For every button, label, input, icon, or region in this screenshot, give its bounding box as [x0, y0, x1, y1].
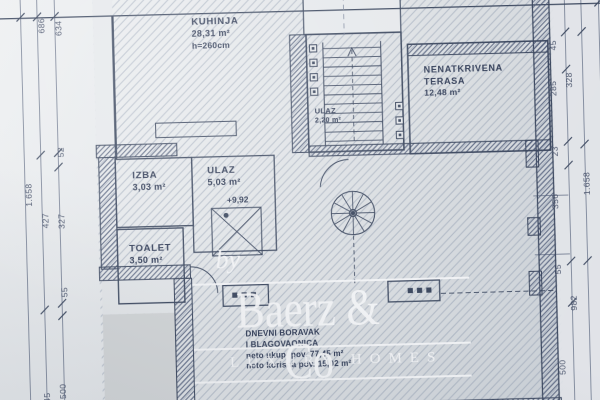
room-label-toalet: TOALET 3,50 m² — [129, 242, 172, 267]
dim-right-total: 1.658 — [581, 172, 592, 196]
spiral-stair — [331, 191, 375, 235]
floor-plan-photo: KUHINJA 28,31 m² h=260cm NENATKRIVENA TE… — [0, 0, 600, 400]
room-label-ulaz: ULAZ 5,03 m² — [207, 165, 241, 190]
dim-right-mid-1: 982 — [569, 295, 579, 311]
dim-left-inner-4: 500 — [58, 383, 68, 399]
dim-left-inner-2: 327 — [56, 213, 66, 229]
dim-right-mid-0: 328 — [564, 72, 574, 88]
dim-left-inner-3: 55 — [59, 287, 69, 298]
elevation-marker: +9,92 — [227, 194, 249, 205]
dim-left-outer-1: 427 — [40, 213, 50, 229]
dim-right-inner-3: 356 — [550, 193, 560, 209]
dim-right-inner-4: 55 — [553, 264, 563, 275]
outside-area — [103, 313, 180, 400]
dim-left-inner-1: 52 — [56, 147, 66, 158]
dim-right-inner-5: 500 — [557, 359, 567, 375]
dim-right-inner-2: 23 — [550, 146, 560, 157]
room-label-kuhinja: KUHINJA 28,31 m² h=260cm — [191, 16, 239, 52]
room-label-terasa: NENATKRIVENA TERASA 12,48 m² — [424, 63, 504, 99]
dim-left-inner-0: 634 — [53, 20, 63, 36]
plan-sheet: KUHINJA 28,31 m² h=260cm NENATKRIVENA TE… — [0, 0, 600, 400]
dim-left-total: 1.658 — [23, 183, 34, 207]
watermark-brand: Baerz & Co — [207, 281, 410, 390]
watermark-by: by — [215, 245, 240, 276]
dim-left-outer-2: 45 — [42, 392, 52, 400]
room-label-izba: IZBA 3,03 m² — [132, 170, 166, 195]
dim-right-inner-1: 285 — [548, 81, 558, 97]
dim-right-inner-0: 45 — [548, 40, 558, 51]
room-label-ulaz-stair: ULAZ 2,20 m² — [315, 106, 342, 126]
dim-left-outer-0: 686 — [36, 18, 46, 34]
